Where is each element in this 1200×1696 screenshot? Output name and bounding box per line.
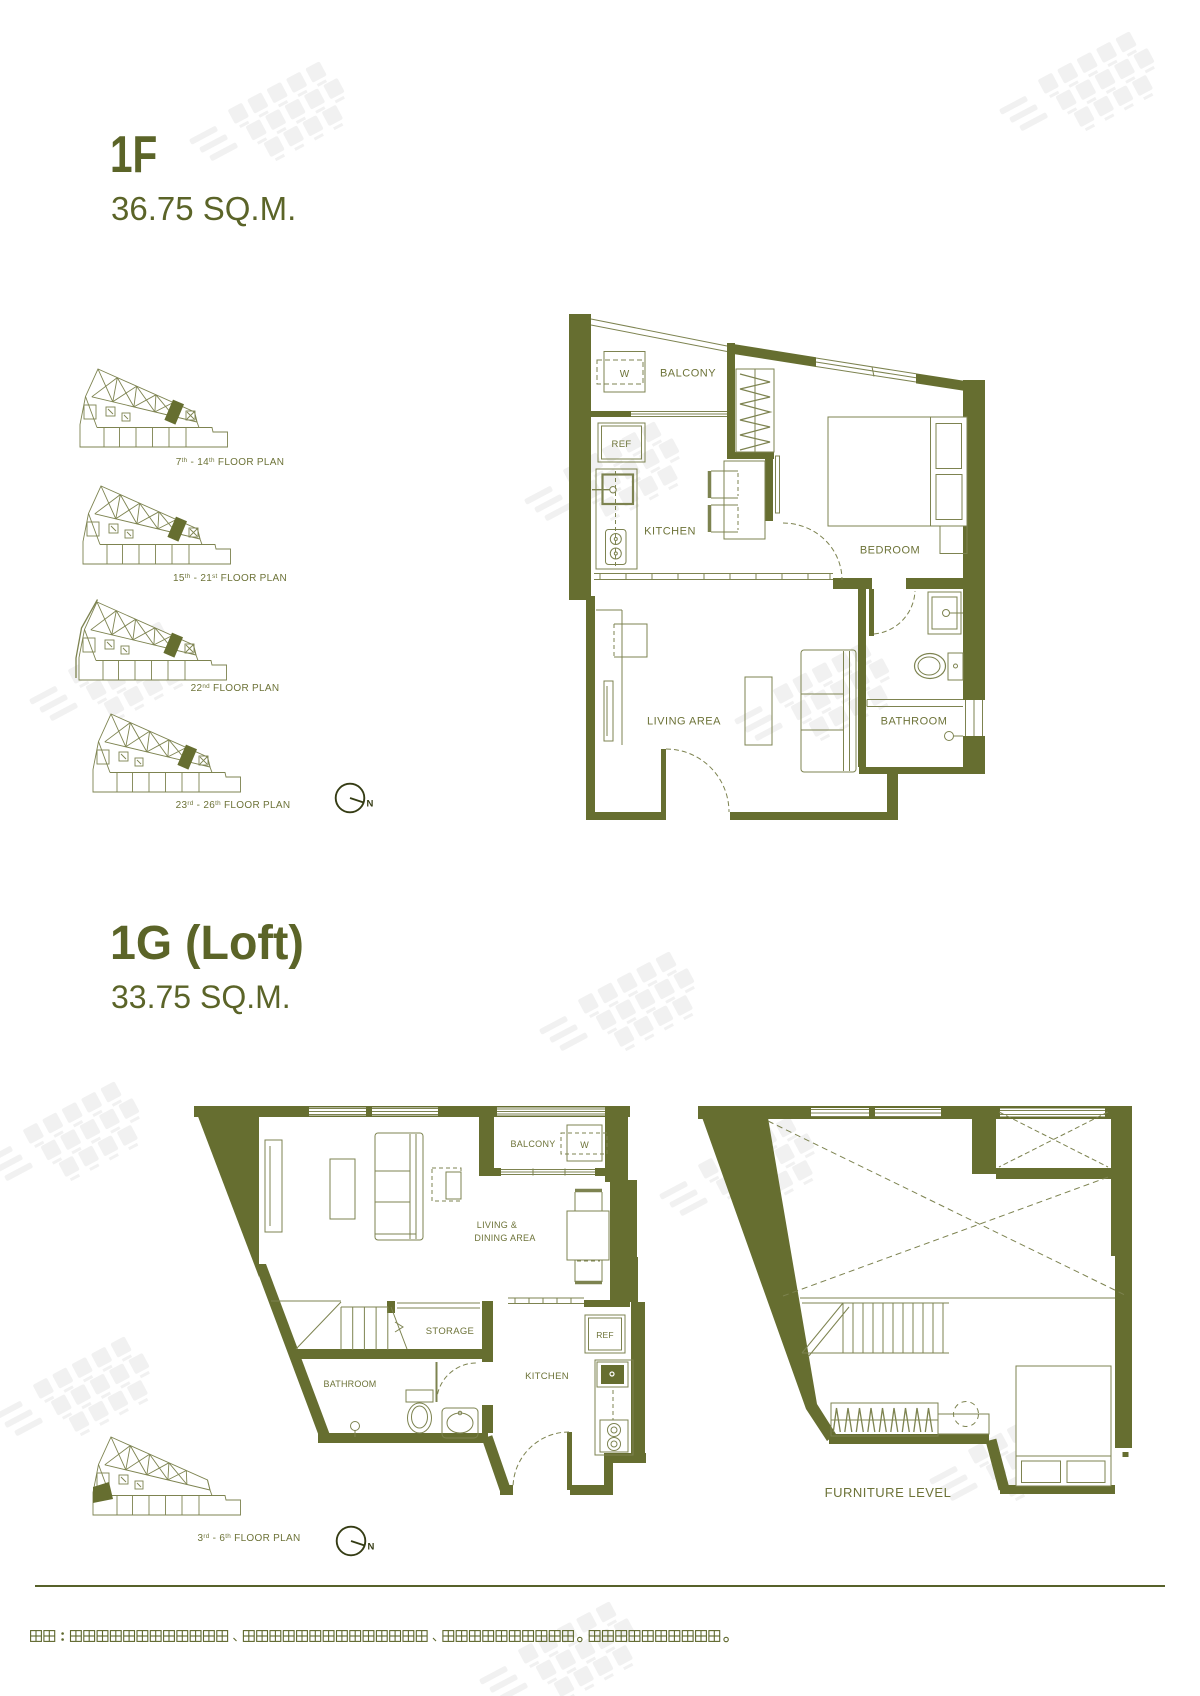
svg-text:36.75 SQ.M.: 36.75 SQ.M. <box>111 190 296 227</box>
svg-text:33.75 SQ.M.: 33.75 SQ.M. <box>111 979 291 1015</box>
svg-text:7th - 14th FLOOR PLAN: 7th - 14th FLOOR PLAN <box>176 457 285 468</box>
svg-text:KITCHEN: KITCHEN <box>525 1371 569 1382</box>
svg-text:3rd - 6th FLOOR PLAN: 3rd - 6th FLOOR PLAN <box>197 1533 300 1544</box>
svg-text:1F: 1F <box>110 125 157 183</box>
svg-text:W: W <box>620 369 630 380</box>
svg-text:REF: REF <box>612 439 632 450</box>
svg-text:15th - 21st FLOOR PLAN: 15th - 21st FLOOR PLAN <box>173 573 287 584</box>
svg-text:BATHROOM: BATHROOM <box>881 716 948 728</box>
svg-text:DINING AREA: DINING AREA <box>474 1233 535 1243</box>
svg-text:N: N <box>368 1542 375 1553</box>
svg-text:REF: REF <box>596 1330 614 1340</box>
svg-text:BALCONY: BALCONY <box>510 1139 555 1149</box>
svg-text:1G (Loft): 1G (Loft) <box>110 916 304 970</box>
svg-text:BEDROOM: BEDROOM <box>860 545 920 557</box>
svg-text:KITCHEN: KITCHEN <box>644 526 696 538</box>
svg-text:LIVING &: LIVING & <box>477 1220 517 1230</box>
svg-text:STORAGE: STORAGE <box>426 1326 474 1337</box>
svg-text:BATHROOM: BATHROOM <box>324 1379 377 1389</box>
svg-text:N: N <box>367 799 374 810</box>
svg-text:23rd - 26th FLOOR PLAN: 23rd - 26th FLOOR PLAN <box>176 800 291 811</box>
svg-text:W: W <box>580 1140 589 1150</box>
svg-text:BALCONY: BALCONY <box>660 368 716 380</box>
svg-text:FURNITURE LEVEL: FURNITURE LEVEL <box>825 1485 952 1500</box>
svg-text:LIVING AREA: LIVING AREA <box>647 716 721 728</box>
